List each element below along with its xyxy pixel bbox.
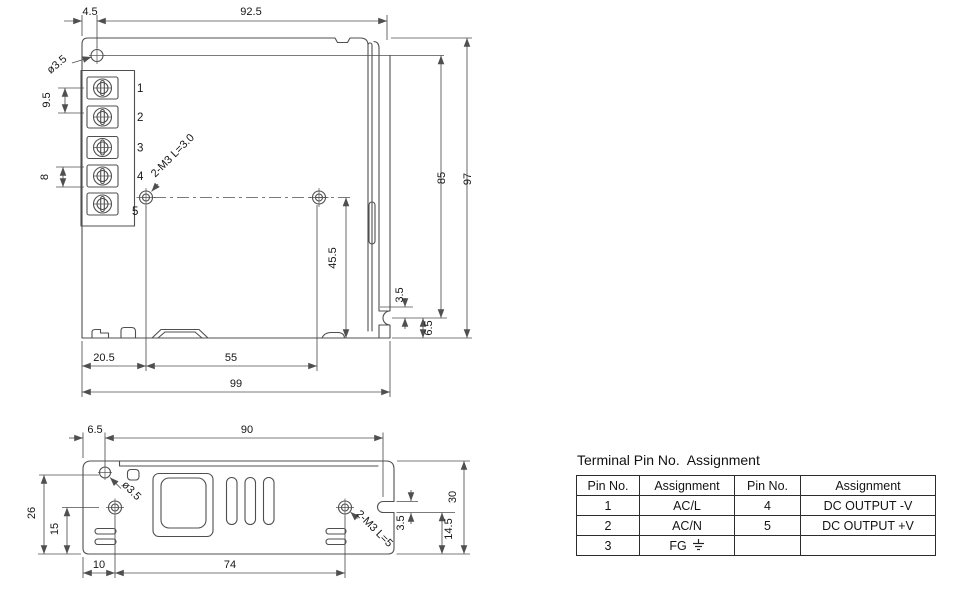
bottom-view: 6.5 90 ø3.5 26 15 2-M3 L=5 3.5 14.5 <box>26 424 470 578</box>
bottom-feet <box>92 328 345 339</box>
table-header-row: Pin No. Assignment Pin No. Assignment <box>577 476 936 496</box>
front-mounting-holes <box>137 188 353 207</box>
dim-inner-height: 85 <box>436 172 448 184</box>
pin-assignment-table: Pin No. Assignment Pin No. Assignment 1 … <box>576 475 936 556</box>
header-pin-no-1: Pin No. <box>577 476 640 496</box>
terminal-screw-2 <box>87 106 118 128</box>
cell-pin: 3 <box>577 536 640 556</box>
fg-label: FG <box>669 539 686 553</box>
pin-label-1: 1 <box>137 83 143 95</box>
bottom-louvers <box>95 529 346 545</box>
front-corner-hole <box>89 47 105 64</box>
cell-assignment: AC/L <box>640 496 735 516</box>
cell-pin <box>735 536 801 556</box>
cell-pin: 2 <box>577 516 640 536</box>
dim-hole-dia-b: ø3.5 <box>119 479 143 503</box>
header-assignment-1: Assignment <box>640 476 735 496</box>
dim-total-height-b: 30 <box>447 491 459 503</box>
dim-pitch-upper: 9.5 <box>41 92 53 107</box>
dim-screw-span: 74 <box>224 559 236 571</box>
terminal-pin-table-panel: Terminal Pin No. Assignment Pin No. Assi… <box>576 452 936 556</box>
terminal-block: 1 2 3 4 5 <box>81 71 144 227</box>
dim-screw-note-b: 2-M3 L=5 <box>353 508 395 550</box>
dim-total-height: 97 <box>462 173 474 185</box>
dim-left-to-screw: 10 <box>93 559 105 571</box>
table-row: 1 AC/L 4 DC OUTPUT -V <box>577 496 936 516</box>
vent-slots <box>227 478 275 525</box>
dim-hole-dia: ø3.5 <box>45 53 70 76</box>
table-title: Terminal Pin No. Assignment <box>577 452 936 468</box>
terminal-screw-3 <box>87 137 118 159</box>
dim-screw-note: 2-M3 L=3.0 <box>149 132 197 180</box>
header-pin-no-2: Pin No. <box>735 476 801 496</box>
header-assignment-2: Assignment <box>801 476 936 496</box>
dim-hole-height-b: 26 <box>26 507 38 519</box>
pin-label-3: 3 <box>137 143 143 155</box>
dim-screw-height: 15 <box>49 523 61 535</box>
table-row: 3 FG <box>577 536 936 556</box>
ground-icon <box>692 539 705 551</box>
dim-hole-to-right: 92.5 <box>240 6 261 18</box>
front-view: 1 2 3 4 5 4.5 92.5 ø3.5 <box>39 6 474 397</box>
cell-pin: 4 <box>735 496 801 516</box>
dim-notch-height: 3.5 <box>395 515 407 530</box>
dim-pitch-lower: 8 <box>39 174 51 180</box>
small-cutout <box>128 470 140 481</box>
table-row: 2 AC/N 5 DC OUTPUT +V <box>577 516 936 536</box>
cell-pin: 1 <box>577 496 640 516</box>
pin-label-2: 2 <box>137 112 143 124</box>
dim-total-width: 99 <box>230 378 242 390</box>
cell-pin: 5 <box>735 516 801 536</box>
datasheet-mechanical-page: 1 2 3 4 5 4.5 92.5 ø3.5 <box>0 0 970 602</box>
cell-assignment <box>801 536 936 556</box>
pin-label-4: 4 <box>137 171 144 183</box>
dim-edge-to-hole-b: 6.5 <box>87 424 102 436</box>
dim-edge-to-hole: 4.5 <box>82 6 97 18</box>
terminal-screw-4 <box>87 165 118 187</box>
terminal-screw-5 <box>87 193 118 215</box>
cell-assignment: DC OUTPUT -V <box>801 496 936 516</box>
pin-label-5: 5 <box>132 206 138 218</box>
case-edge-seam <box>120 462 379 467</box>
bottom-view-dimensions: 6.5 90 ø3.5 26 15 2-M3 L=5 3.5 14.5 <box>26 424 470 578</box>
cell-assignment: AC/N <box>640 516 735 536</box>
dim-notch-to-bottom: 6.5 <box>423 320 435 335</box>
ac-inlet-cutout <box>153 474 213 537</box>
dim-notch-to-bottom-b: 14.5 <box>443 518 455 539</box>
cell-assignment: FG <box>640 536 735 556</box>
dim-hole-span: 55 <box>225 352 237 364</box>
dim-hole-height: 45.5 <box>327 247 339 268</box>
dim-notch-gap: 3.5 <box>394 287 406 302</box>
cell-assignment: DC OUTPUT +V <box>801 516 936 536</box>
dim-left-to-hole: 20.5 <box>93 352 114 364</box>
dim-hole-to-notch: 90 <box>241 424 253 436</box>
terminal-screw-1 <box>87 77 118 99</box>
